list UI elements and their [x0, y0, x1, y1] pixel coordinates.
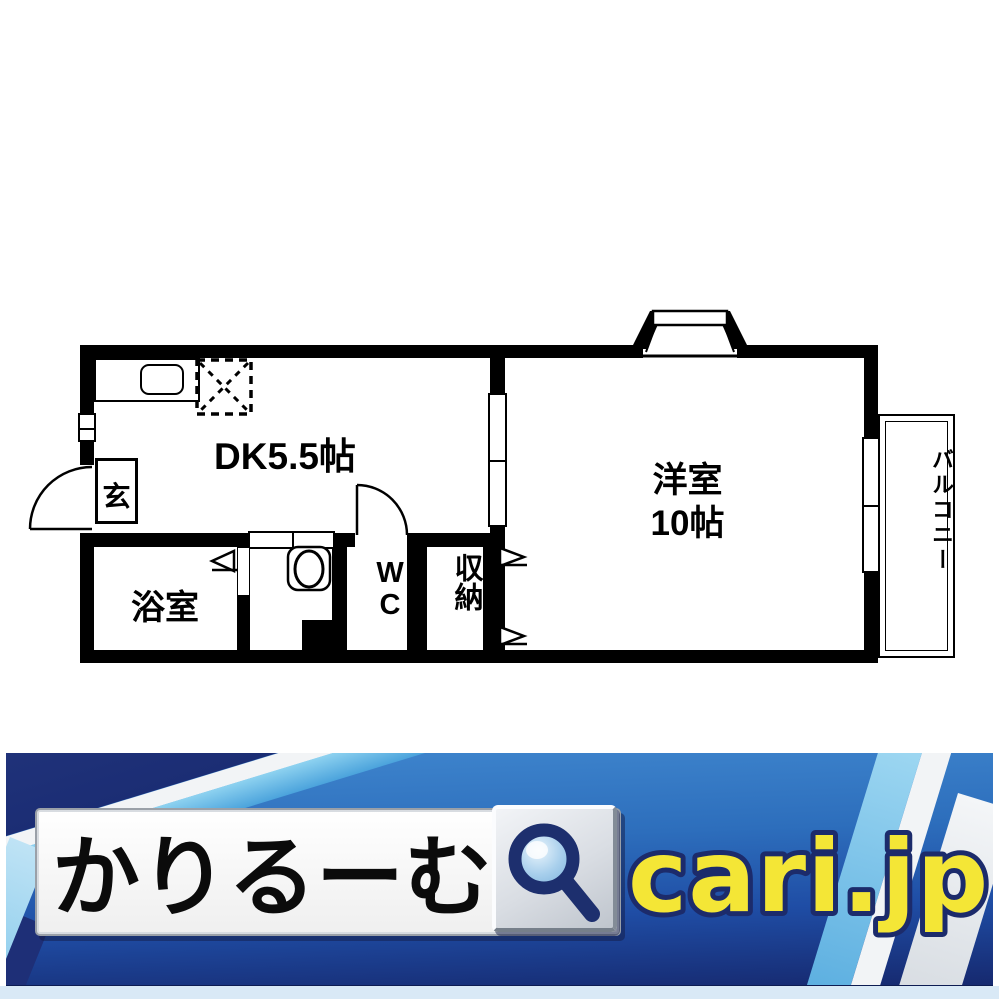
site-wordmark: cari.jp	[622, 793, 993, 961]
sliding-door-washroom	[248, 531, 335, 549]
wall-closet-right	[483, 547, 505, 650]
window-left-wall	[78, 413, 96, 442]
brand-text: かりるーむ	[47, 818, 497, 922]
washbasin	[288, 547, 330, 590]
wc-door-arc	[357, 485, 407, 535]
wall-wash-right	[332, 547, 347, 650]
kitchen-sink	[140, 364, 184, 395]
bathroom-label: 浴室	[105, 580, 225, 629]
western-room-size: 10帖	[595, 503, 780, 546]
wall-step-block	[302, 620, 334, 652]
western-room-name: 洋室	[595, 460, 780, 503]
balcony-label: バルコニー	[880, 448, 953, 573]
closet-label: 収納	[431, 553, 481, 611]
entrance-opening	[80, 465, 94, 533]
wc-doorway	[355, 533, 407, 547]
magnifying-glass-icon	[496, 809, 613, 928]
bath-door-triangle	[212, 551, 238, 571]
bottom-strip	[0, 986, 999, 999]
entrance-box: 玄	[95, 458, 138, 524]
screenshot-stage: 玄 バルコニー	[0, 0, 999, 999]
wc-label: WC	[357, 557, 405, 621]
refrigerator-dashed-box	[197, 360, 251, 414]
site-text: cari.jp	[628, 818, 989, 935]
wall-top	[80, 345, 878, 358]
western-room-label: 洋室 10帖	[595, 460, 780, 545]
cari-jp-banner-link[interactable]: かりるーむ cari.jp	[6, 753, 993, 988]
wall-wc-right	[407, 547, 427, 650]
sliding-door-dk-western	[488, 393, 507, 527]
wall-bottom	[80, 650, 878, 663]
search-button[interactable]	[492, 805, 617, 932]
bath-doorway	[238, 548, 249, 595]
entrance-label: 玄	[98, 475, 135, 515]
balcony: バルコニー	[878, 414, 955, 658]
dk-label: DK5.5帖	[185, 426, 385, 480]
